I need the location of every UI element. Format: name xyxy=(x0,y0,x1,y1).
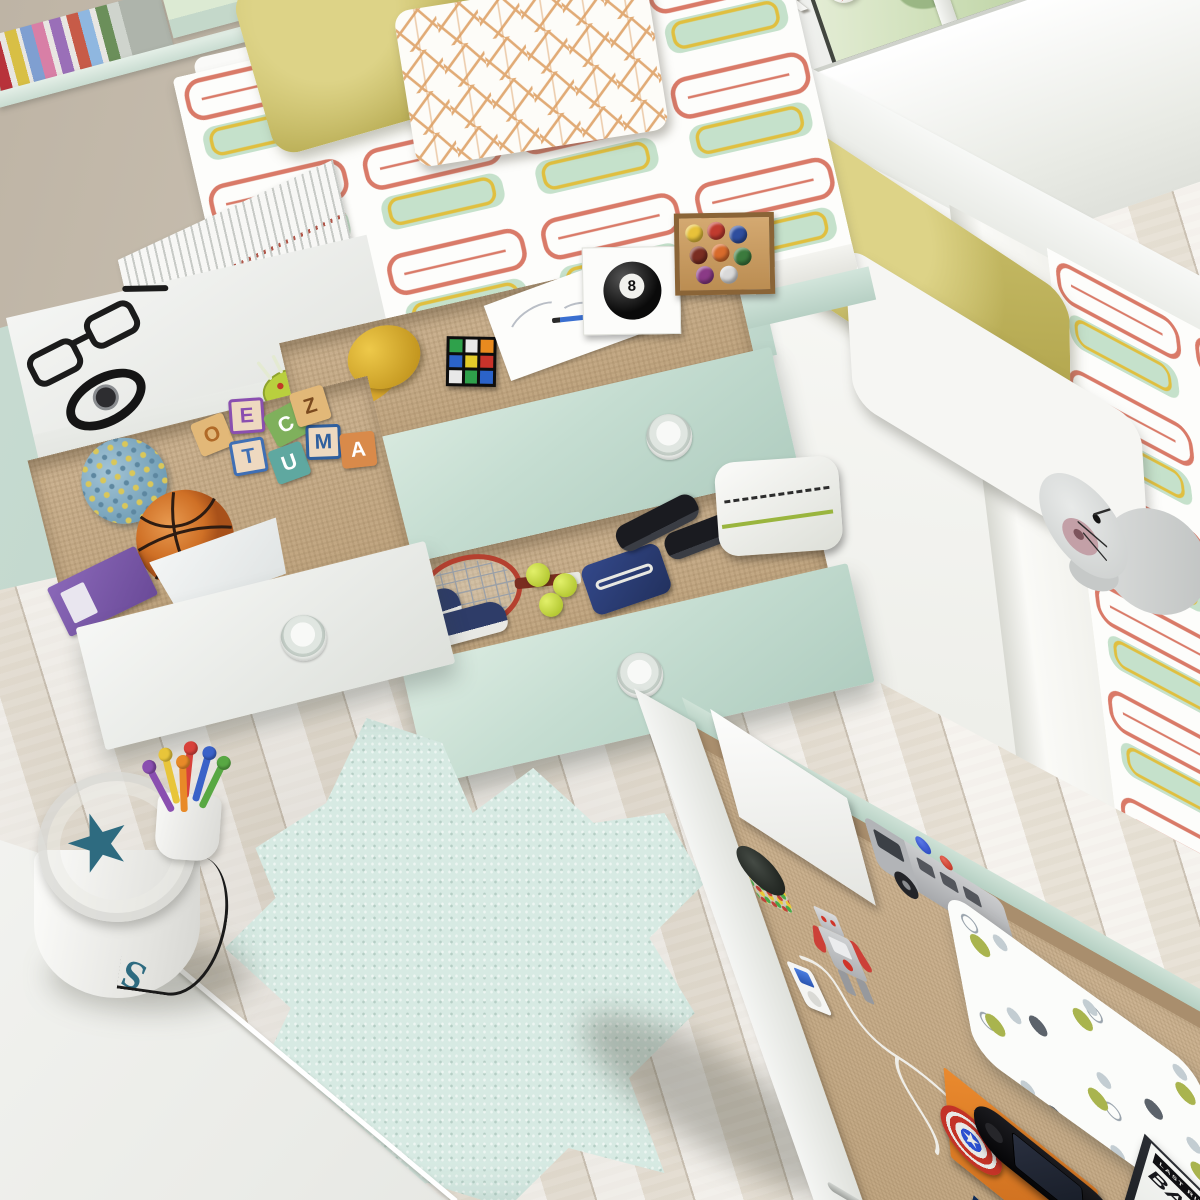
rubik-cell xyxy=(465,355,478,368)
psp-dpad xyxy=(985,1119,1004,1147)
rubik-cell xyxy=(465,339,478,352)
drawer-knob xyxy=(642,409,697,464)
book-label xyxy=(60,582,98,624)
rubik-cell xyxy=(449,339,462,352)
rubik-cube xyxy=(446,336,497,387)
alphabet-block: A xyxy=(339,431,377,469)
bedroom-scene: R xyxy=(0,0,1200,1200)
rubik-cell xyxy=(449,355,462,368)
rubik-cell xyxy=(480,371,493,384)
star-icon xyxy=(60,804,138,882)
bag-strap xyxy=(594,562,654,591)
pen-cup xyxy=(150,758,230,868)
billiard-ball xyxy=(720,266,738,284)
bag-trim xyxy=(722,509,833,529)
billiard-ball xyxy=(733,247,751,265)
rubik-row xyxy=(449,339,493,352)
watch-face xyxy=(88,380,123,415)
billiard-ball xyxy=(696,266,714,284)
bag-zipper xyxy=(724,486,829,504)
window-sash xyxy=(874,0,957,25)
eight-ball-number: 8 xyxy=(619,273,644,298)
billiard-balls-box xyxy=(674,212,775,296)
billiard-ball xyxy=(707,222,725,240)
alphabet-block: M xyxy=(305,424,341,460)
sports-bag xyxy=(714,455,844,557)
music-player-wheel xyxy=(805,989,824,1009)
billiard-ball xyxy=(729,225,747,243)
rubik-cell xyxy=(481,340,494,353)
billiard-ball xyxy=(689,246,707,264)
rubik-cell xyxy=(449,370,462,383)
rubik-row xyxy=(449,370,493,383)
white-box: 8 xyxy=(582,246,682,336)
eight-ball: 8 xyxy=(603,261,662,320)
alphabet-block: T xyxy=(228,436,269,477)
robot-eye xyxy=(829,919,836,927)
rubik-cell xyxy=(465,371,478,384)
billiard-ball xyxy=(711,244,729,262)
eyeglasses-bridge xyxy=(72,332,91,346)
rubik-cell xyxy=(480,355,493,368)
eyeglasses-temple xyxy=(122,285,168,292)
alphabet-block: E xyxy=(228,397,265,434)
pen-ball-tip xyxy=(175,755,189,769)
billiard-ball xyxy=(685,224,703,242)
rubik-row xyxy=(449,355,493,368)
drawer-knob xyxy=(276,610,332,666)
alphabet-block: O xyxy=(190,412,236,458)
robot-eye xyxy=(820,915,827,923)
